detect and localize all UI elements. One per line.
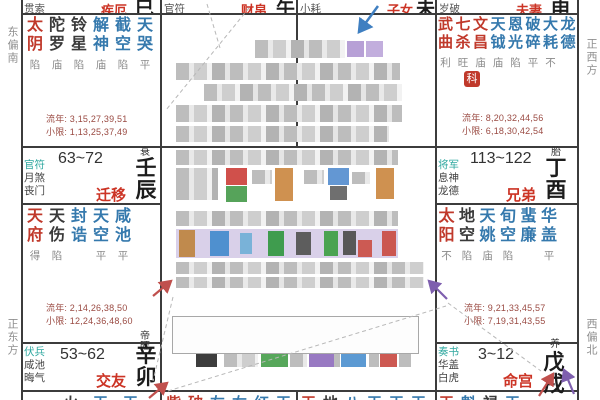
grid-line (21, 146, 578, 148)
partial-star-char: 天 (505, 392, 520, 400)
palace-name-zinv: 子女 (387, 0, 413, 13)
censored-text-block (176, 150, 398, 165)
star-column: 蜚廉 (519, 207, 538, 259)
decade-range: 3~12 (478, 346, 514, 364)
partial-star-char: 天 (367, 392, 382, 400)
stage-label: 养 (550, 340, 562, 350)
shensha-stack: 奏书华盖白虎 (438, 346, 459, 385)
palace-name-qianyi: 迁移 (96, 184, 126, 205)
shensha-label: 贯索 (24, 1, 45, 13)
censored-text-block (204, 84, 402, 101)
censored-color-block (358, 240, 372, 257)
grid-line (21, 13, 578, 15)
palace-zi-partial-stars: 天地八天天天 (0, 392, 435, 400)
censored-text-block (252, 170, 272, 184)
grid-line (160, 0, 162, 400)
liunian-row: 流年: 3,15,27,39,51 (46, 112, 127, 125)
partial-star-char: 天 (411, 392, 426, 400)
censored-color-block (324, 231, 338, 256)
palace-name-minggong: 命宫 (503, 370, 533, 391)
top-palace-strip: 贯索 疾厄 巳 官符 财帛 午 小耗 子女 未 岁破 夫妻 申 (21, 0, 578, 13)
star-column: 太阴陷 (25, 16, 45, 75)
star-column: 太阳不 (437, 207, 456, 266)
grid-line (21, 203, 160, 205)
star-column: 大耗不 (542, 16, 559, 72)
censored-text-block (176, 105, 402, 122)
star-column: 恩光陷 (507, 16, 524, 72)
grid-line (21, 0, 23, 400)
censored-color-block (376, 168, 394, 199)
decade-range: 63~72 (58, 150, 103, 168)
ganzhi-dingyou: 丁酉 (544, 158, 568, 202)
liunian-row: 流年: 9,21,33,45,57 (464, 301, 545, 314)
censored-color-block (296, 232, 311, 255)
star-column: 铃星陷 (69, 16, 89, 75)
star-column: 文昌庙 (472, 16, 489, 72)
ganzhi-renchen: 壬辰 (134, 158, 158, 202)
partial-star-char: 禄 (483, 392, 498, 400)
censored-text-block (399, 353, 411, 367)
sihua-ke-badge: 科 (464, 71, 480, 87)
shensha-label: 官符 (164, 1, 185, 13)
direction-label-due-west: 正西方 (583, 38, 599, 77)
censored-color-block (341, 352, 366, 367)
branch-shen: 申 (551, 0, 570, 13)
censored-color-block (240, 233, 252, 254)
censored-text-block (176, 211, 398, 226)
censored-text-block (176, 277, 424, 288)
palace-name-fuqi: 夫妻 (516, 0, 542, 13)
partial-star-char: 地 (323, 392, 338, 400)
partial-star-char: 天 (389, 392, 404, 400)
censored-color-block (275, 168, 293, 201)
liunian-row: 流年: 8,20,32,44,56 (462, 111, 543, 124)
palace-name-xiongdi: 兄弟 (506, 184, 536, 205)
grid-line (577, 0, 579, 400)
star-column: 七杀旺 (455, 16, 472, 72)
censored-text-block (176, 262, 424, 274)
censored-text-block (255, 40, 345, 58)
ganzhi-xinmao: 辛卯 (134, 345, 158, 389)
censored-color-block (330, 186, 347, 200)
ganzhi-wuxu: 戊戌 (542, 352, 566, 396)
palace-name-jiaoyou: 交友 (96, 370, 126, 391)
censored-color-block (380, 352, 397, 367)
censored-color-block (382, 231, 396, 256)
purple-arrow-mid-right (429, 281, 447, 299)
censored-color-block (179, 230, 195, 257)
star-column: 咸池平 (113, 207, 133, 266)
xiaoxian-row: 小限: 6,18,30,42,54 (462, 124, 543, 137)
star-column: 华盖平 (540, 207, 559, 266)
partial-star-char: 八 (345, 392, 360, 400)
censored-text-block (352, 172, 370, 184)
branch-wei: 未 (416, 0, 435, 13)
partial-star-char: 天 (439, 392, 454, 400)
censored-color-block (309, 352, 334, 367)
censored-text-block (304, 170, 324, 184)
censored-color-block (268, 231, 284, 256)
partial-star-char: 魁 (461, 392, 476, 400)
palace-name-caibo: 财帛 (241, 0, 267, 13)
star-column: 武曲利 (437, 16, 454, 72)
censored-color-block (226, 168, 247, 185)
star-column: 天府得 (25, 207, 45, 266)
red-arrow-mid-left (153, 281, 171, 296)
censored-text-block (176, 126, 389, 142)
censored-text-block (176, 168, 218, 200)
shensha-stack: 将军息神龙德 (438, 159, 459, 198)
direction-label-west-north: 西偏北 (583, 318, 599, 357)
liunian-row: 流年: 2,14,26,38,50 (46, 301, 127, 314)
partial-star-char: 天 (301, 392, 316, 400)
star-column: 旬空陷 (499, 207, 518, 266)
xiaoxian-row: 小限: 7,19,31,43,55 (464, 314, 545, 327)
branch-wu: 午 (276, 0, 295, 13)
censored-color-block (347, 41, 364, 57)
palace-name-jie: 疾厄 (101, 0, 127, 13)
star-column: 截空陷 (113, 16, 133, 75)
branch-si: 巳 (135, 0, 154, 13)
censored-color-block (328, 168, 349, 185)
star-column: 解神庙 (91, 16, 111, 75)
star-column: 天姚庙 (478, 207, 497, 266)
censored-text-block (290, 353, 307, 367)
decade-range: 53~62 (60, 346, 105, 364)
direction-label-east-south: 东偏南 (4, 26, 20, 65)
censored-color-block (343, 231, 356, 255)
censored-text-block (224, 352, 258, 367)
ziwei-astrology-chart: 东偏南 正东方 正西方 西偏北 贯索 疾厄 巳 官符 财帛 午 小耗 子女 未 … (0, 0, 600, 400)
censored-color-block (261, 352, 288, 367)
star-column: 龙德 (560, 16, 577, 66)
star-column: 天空平 (91, 207, 111, 266)
star-column: 地空陷 (458, 207, 477, 266)
xiaoxian-row: 小限: 12,24,36,48,60 (46, 314, 133, 327)
shensha-stack: 官符月煞丧门 (24, 159, 45, 198)
decade-range: 113~122 (470, 150, 532, 168)
censored-text-block (176, 63, 400, 80)
shensha-label: 岁破 (439, 1, 460, 13)
censored-text-block (333, 353, 340, 367)
censored-color-block (210, 231, 229, 256)
star-column: 封诰 (69, 207, 89, 259)
censored-color-block (366, 41, 383, 57)
shensha-stack: 伏兵咸池晦气 (24, 346, 45, 385)
star-column: 破碎平 (525, 16, 542, 72)
star-column: 天哭平 (135, 16, 155, 75)
star-column: 天钺庙 (490, 16, 507, 72)
star-column: 陀罗庙 (47, 16, 67, 75)
shensha-label: 小耗 (300, 1, 321, 13)
censored-text-block (369, 353, 379, 367)
censored-info-box (172, 316, 419, 354)
xiaoxian-row: 小限: 1,13,25,37,49 (46, 125, 127, 138)
star-column: 天伤陷 (47, 207, 67, 266)
direction-label-due-east: 正东方 (4, 318, 20, 357)
censored-color-block (226, 186, 247, 202)
